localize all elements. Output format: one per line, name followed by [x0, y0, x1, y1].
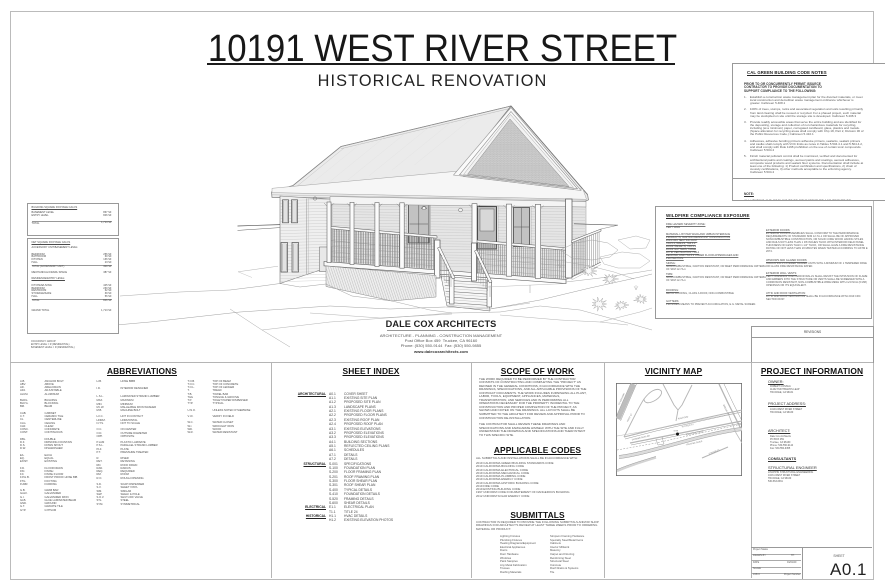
svg-text:SITE: SITE [674, 430, 679, 432]
